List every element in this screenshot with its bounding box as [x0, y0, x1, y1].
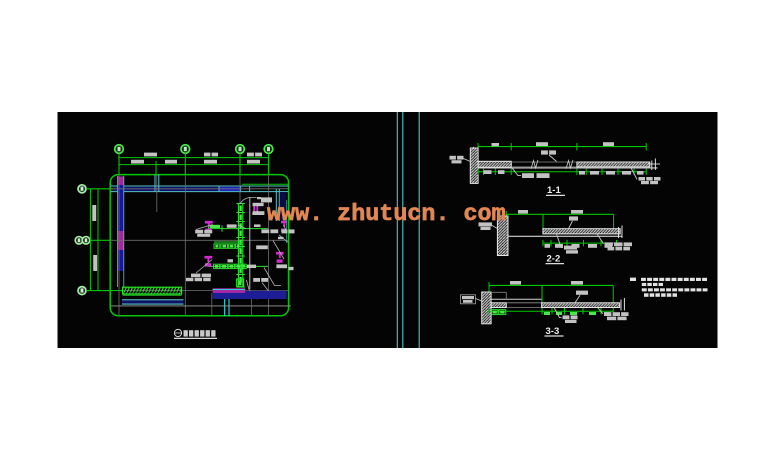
- svg-text:3-3: 3-3: [546, 326, 560, 337]
- svg-text:www. zhutucn. com: www. zhutucn. com: [267, 202, 506, 228]
- svg-text:2-2: 2-2: [547, 253, 561, 264]
- svg-text:1-1: 1-1: [547, 185, 561, 196]
